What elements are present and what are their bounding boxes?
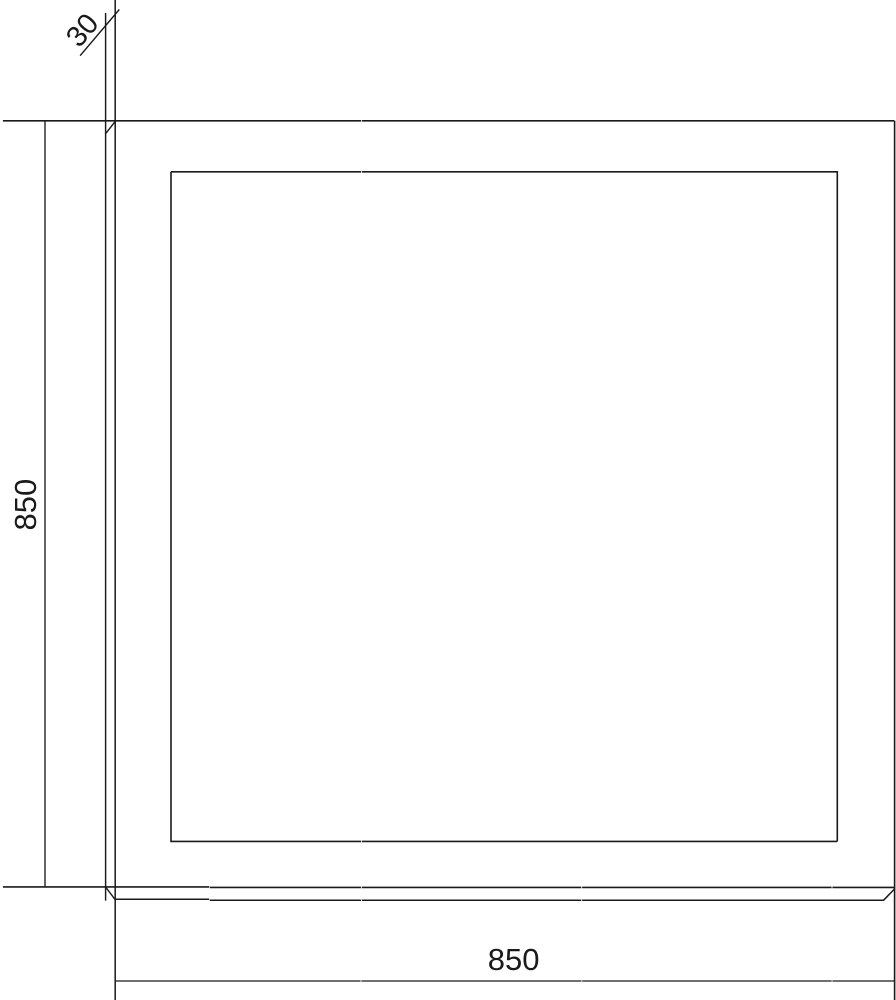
svg-text:850: 850 [8, 479, 43, 531]
svg-text:850: 850 [488, 942, 540, 977]
